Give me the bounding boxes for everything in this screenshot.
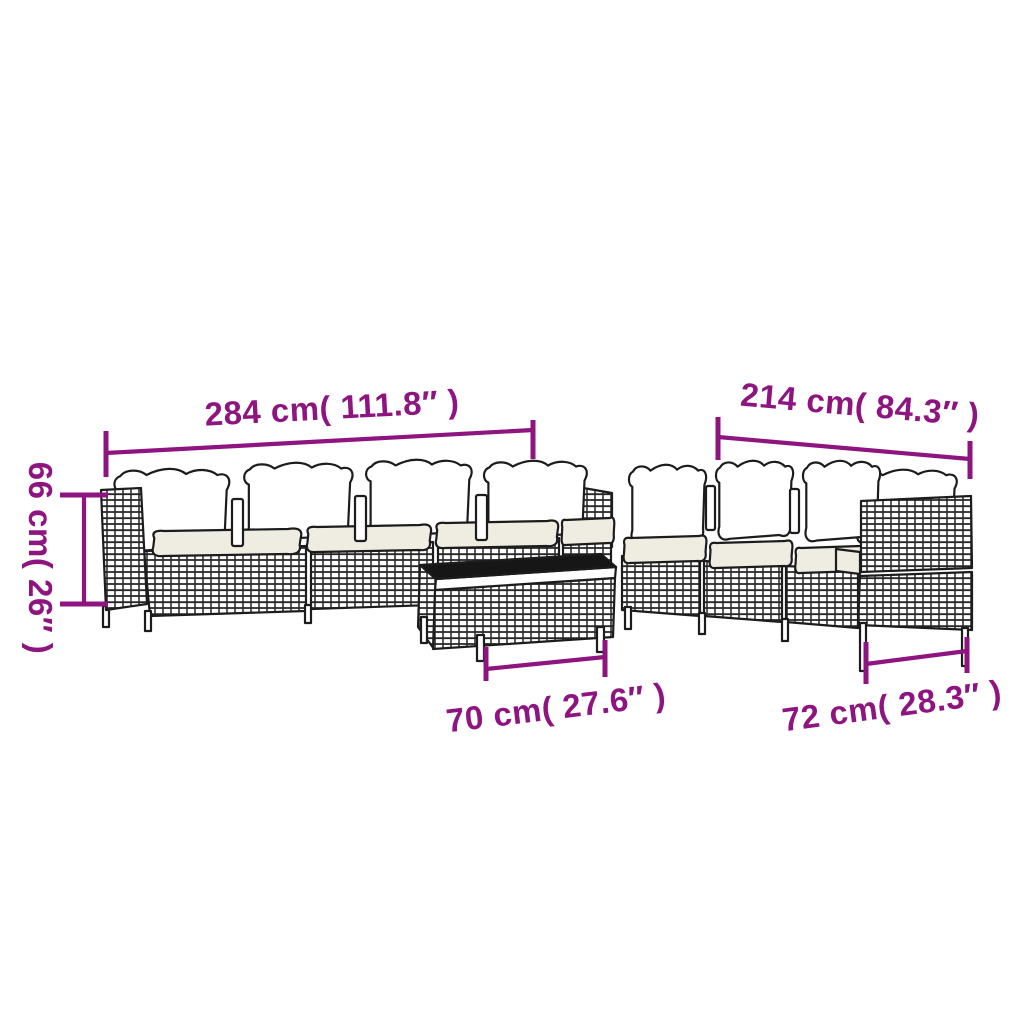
armrest-panel	[101, 488, 147, 610]
seat-cushion	[836, 549, 860, 574]
coffee-table-illustration	[418, 554, 616, 661]
wicker-base	[622, 556, 700, 616]
connector-clip	[476, 495, 487, 540]
seat-cushion	[153, 528, 302, 556]
corner-armrest-panel	[861, 496, 972, 572]
table-leg	[477, 635, 484, 661]
furniture-line-art	[0, 0, 1024, 1024]
seat-cushion	[562, 517, 615, 545]
back-cushion	[629, 465, 706, 544]
dimension-label-seat-height: 66 cm( 26″ )	[21, 462, 59, 654]
dimension-line-70	[486, 640, 605, 681]
connector-clip	[232, 499, 243, 546]
wicker-base	[786, 566, 858, 628]
dimension-line-72	[866, 637, 967, 684]
seat-cushion	[436, 520, 558, 548]
product-dimension-diagram: 284 cm( 111.8″ ) 214 cm( 84.3″ ) 66 cm( …	[0, 0, 1024, 1024]
right-sofa-illustration	[622, 461, 972, 671]
seat-cushion	[624, 535, 707, 563]
back-cushion	[716, 461, 793, 540]
connector-clip	[790, 489, 799, 533]
connector-clip	[355, 496, 366, 541]
connector-clip	[706, 486, 715, 530]
seat-cushion	[307, 524, 431, 552]
table-leg	[421, 617, 427, 643]
seat-cushion	[710, 540, 793, 568]
corner-base-panel	[858, 572, 972, 630]
wicker-base	[704, 561, 782, 622]
